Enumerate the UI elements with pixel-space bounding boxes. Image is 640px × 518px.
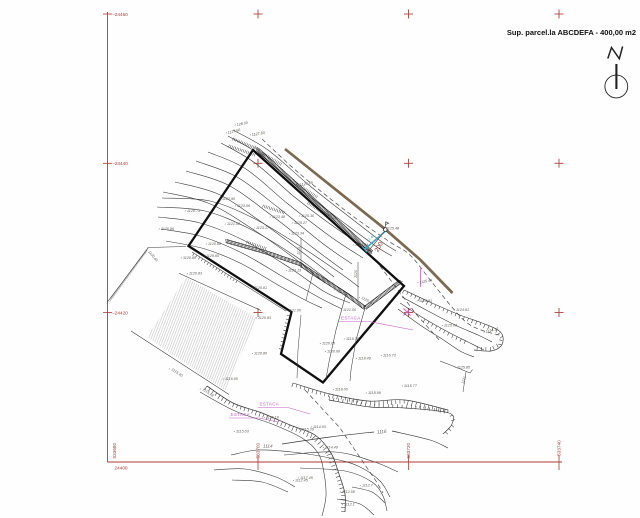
svg-text:ESTACA: ESTACA (260, 402, 280, 407)
svg-text:1121.08: 1121.08 (227, 222, 241, 226)
svg-text:1120.73: 1120.73 (187, 209, 201, 213)
svg-text:1120.81: 1120.81 (254, 286, 267, 290)
svg-text:1123.90: 1123.90 (222, 197, 236, 201)
svg-text:1114: 1114 (263, 444, 273, 449)
svg-text:–24440: –24440 (112, 161, 128, 166)
svg-text:1114.93: 1114.93 (313, 425, 327, 429)
svg-text:1124.61: 1124.61 (456, 308, 469, 312)
svg-text:1125.85: 1125.85 (457, 366, 471, 370)
svg-text:1125.27: 1125.27 (294, 221, 308, 225)
svg-text:533680: 533680 (112, 442, 117, 458)
svg-text:1121.00: 1121.00 (343, 308, 357, 312)
svg-text:–24460: –24460 (112, 12, 128, 17)
svg-text:1117.45: 1117.45 (300, 476, 314, 480)
svg-text:1121.00: 1121.00 (288, 309, 302, 313)
svg-text:1116.18: 1116.18 (266, 416, 280, 420)
svg-text:1120.60: 1120.60 (206, 254, 220, 258)
svg-text:1120.80: 1120.80 (254, 352, 268, 356)
svg-text:–24420: –24420 (112, 310, 128, 315)
svg-text:1118.99: 1118.99 (368, 391, 381, 395)
svg-text:1114.49: 1114.49 (325, 446, 338, 450)
svg-text:ESTACA: ESTACA (341, 316, 361, 321)
svg-text:1112.1: 1112.1 (344, 503, 355, 507)
svg-text:1120.05: 1120.05 (322, 342, 336, 346)
svg-text:1123.48: 1123.48 (272, 215, 286, 219)
svg-text:1124.34: 1124.34 (355, 243, 368, 247)
svg-text:Sup. parcel.la ABCDEFA - 400,0: Sup. parcel.la ABCDEFA - 400,00 m2 (507, 28, 636, 37)
svg-text:1115.39: 1115.39 (301, 428, 314, 432)
svg-text:1115.03: 1115.03 (236, 430, 250, 434)
svg-text:1123.06: 1123.06 (237, 204, 251, 208)
svg-text:1120.83: 1120.83 (189, 272, 203, 276)
svg-text:1118.00: 1118.00 (335, 388, 349, 392)
svg-text:1123: 1123 (297, 247, 302, 255)
svg-text:1118.49: 1118.49 (358, 357, 371, 361)
svg-text:1120.80: 1120.80 (183, 256, 197, 260)
svg-text:1119.78: 1119.78 (346, 337, 360, 341)
svg-text:1116.73: 1116.73 (383, 354, 397, 358)
svg-text:1125.48: 1125.48 (386, 227, 400, 231)
svg-text:1124.81: 1124.81 (419, 299, 432, 303)
svg-text:1125.30: 1125.30 (301, 214, 315, 218)
svg-text:–533740: –533740 (557, 440, 562, 459)
svg-text:1112.58: 1112.58 (342, 490, 356, 494)
svg-text:533720: 533720 (406, 442, 411, 458)
svg-text:1116: 1116 (377, 429, 387, 435)
svg-text:1120.60: 1120.60 (327, 350, 341, 354)
svg-text:1120.86: 1120.86 (161, 227, 175, 231)
svg-text:1118.77: 1118.77 (404, 384, 418, 388)
svg-text:1120.83: 1120.83 (258, 316, 272, 320)
svg-text:1120.88: 1120.88 (208, 242, 222, 246)
svg-text:1123.17: 1123.17 (256, 226, 270, 230)
svg-text:24400: 24400 (115, 466, 128, 471)
svg-text:1125: 1125 (354, 270, 359, 278)
svg-text:533700: 533700 (256, 442, 261, 458)
svg-text:ESTACA: ESTACA (231, 412, 251, 417)
svg-text:1123.13: 1123.13 (288, 269, 302, 273)
svg-text:1125.03: 1125.03 (444, 324, 458, 328)
svg-text:1112.7: 1112.7 (362, 484, 374, 488)
svg-text:1123.34: 1123.34 (291, 232, 304, 236)
svg-text:1116.95: 1116.95 (225, 377, 239, 381)
